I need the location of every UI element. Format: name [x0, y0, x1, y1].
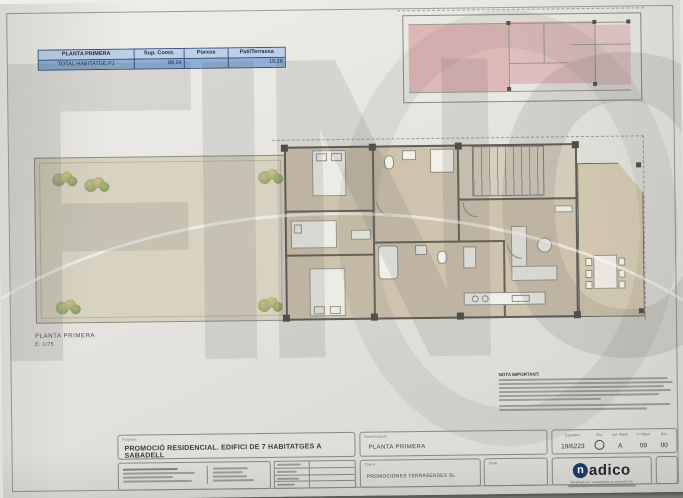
table-cell: 10.28	[229, 58, 285, 68]
chair	[585, 281, 592, 289]
photo-of-plan-sheet: PLANTA PRIMERA Sup. Const. Porxos Pati/T…	[0, 0, 683, 498]
chair	[618, 270, 625, 278]
toilet	[437, 251, 447, 264]
coffee-table	[537, 237, 552, 252]
chair	[618, 281, 625, 289]
revision-rows-box	[274, 460, 356, 489]
projecte-label: Projecte	[122, 438, 137, 442]
firm-info-box	[118, 461, 271, 491]
plant-icon	[52, 171, 78, 187]
client-name: PROMOCIONES TERRASENSES SL	[367, 474, 456, 480]
plant-icon	[84, 177, 110, 193]
sofa	[511, 265, 557, 281]
expedient-label: Expedient	[565, 433, 580, 437]
circle-symbol-icon	[594, 440, 604, 450]
floor-plan-drawing	[32, 138, 646, 329]
table-header-cell: PLANTA PRIMERA	[39, 50, 135, 60]
data-label: Data	[489, 461, 497, 465]
dining-table	[593, 255, 617, 289]
nadico-logo-icon: n	[573, 463, 588, 478]
sink	[402, 150, 416, 160]
fridge	[463, 246, 476, 268]
important-note: NOTA IMPORTANT:	[499, 370, 675, 413]
plan-scale: E: 1/75	[35, 341, 95, 348]
client-label: Client	[365, 463, 375, 467]
table-cell: 88.04	[135, 59, 185, 69]
plan-title: PLANTA PRIMERA	[35, 333, 95, 340]
expedient-box: Expedient 19/6223 Situ. Ind. Plànol A nº…	[551, 428, 677, 455]
table-header-cell: Porxos	[185, 48, 229, 58]
table-header-cell: Sup. Const.	[135, 49, 185, 59]
logo-tagline: Enginyeria i arquitectura consultoria	[553, 479, 651, 484]
plant-icon	[258, 297, 284, 313]
sheet-name: PLANTA PRIMERA	[368, 444, 425, 451]
bathtub	[378, 245, 398, 279]
shower	[430, 149, 454, 173]
rev-value: 00	[661, 442, 668, 449]
staircase	[472, 146, 545, 197]
chair	[585, 270, 592, 278]
cooktop	[512, 295, 530, 302]
right-terrace	[577, 162, 645, 317]
table-cell: TOTAL HABITATGE P1	[39, 60, 135, 70]
chair	[618, 258, 625, 266]
chair	[585, 258, 592, 266]
table-header-cell: Pati/Terrassa	[229, 48, 285, 58]
client-box: Client PROMOCIONES TERRASENSES SL	[360, 458, 481, 487]
situ-label: Situ.	[596, 433, 603, 437]
date-box: Data	[484, 458, 548, 487]
project-title: PROMOCIÓ RESIDENCIAL. EDIFICI DE 7 HABIT…	[124, 443, 350, 460]
expedient-value: 19/6223	[561, 443, 585, 450]
ind-planol-value: A	[618, 443, 622, 450]
surface-summary-table: PLANTA PRIMERA Sup. Const. Porxos Pati/T…	[38, 47, 286, 71]
ind-planol-label: Ind. Plànol	[612, 433, 628, 437]
plant-icon	[258, 169, 284, 185]
kitchen-sink	[482, 295, 489, 302]
sheet-name-box: Denominació PLANTA PRIMERA	[359, 430, 547, 457]
project-title-box: Projecte PROMOCIÓ RESIDENCIAL. EDIFICI D…	[117, 432, 355, 460]
num-planol-value: 09	[640, 442, 647, 449]
key-plan-thumbnail	[402, 12, 642, 103]
nadico-logo: n adico	[553, 461, 651, 479]
plant-icon	[56, 299, 82, 315]
desk	[351, 230, 371, 240]
toilet	[384, 155, 394, 169]
kitchen-sink	[472, 295, 479, 302]
paper-sheet: PLANTA PRIMERA Sup. Const. Porxos Pati/T…	[0, 0, 683, 498]
plan-caption: PLANTA PRIMERA E: 1/75	[35, 333, 95, 348]
rev-label: Rev.	[661, 432, 668, 436]
empty-box	[656, 456, 678, 484]
nadico-logo-box: n adico Enginyeria i arquitectura consul…	[552, 456, 652, 485]
nadico-logo-text: adico	[589, 462, 631, 480]
num-planol-label: nº Plànol	[637, 432, 651, 436]
tv-cabinet	[555, 205, 573, 212]
note-title: NOTA IMPORTANT:	[499, 370, 675, 377]
sink	[415, 245, 427, 255]
denominacio-label: Denominació	[364, 434, 387, 438]
table-cell	[185, 58, 229, 68]
